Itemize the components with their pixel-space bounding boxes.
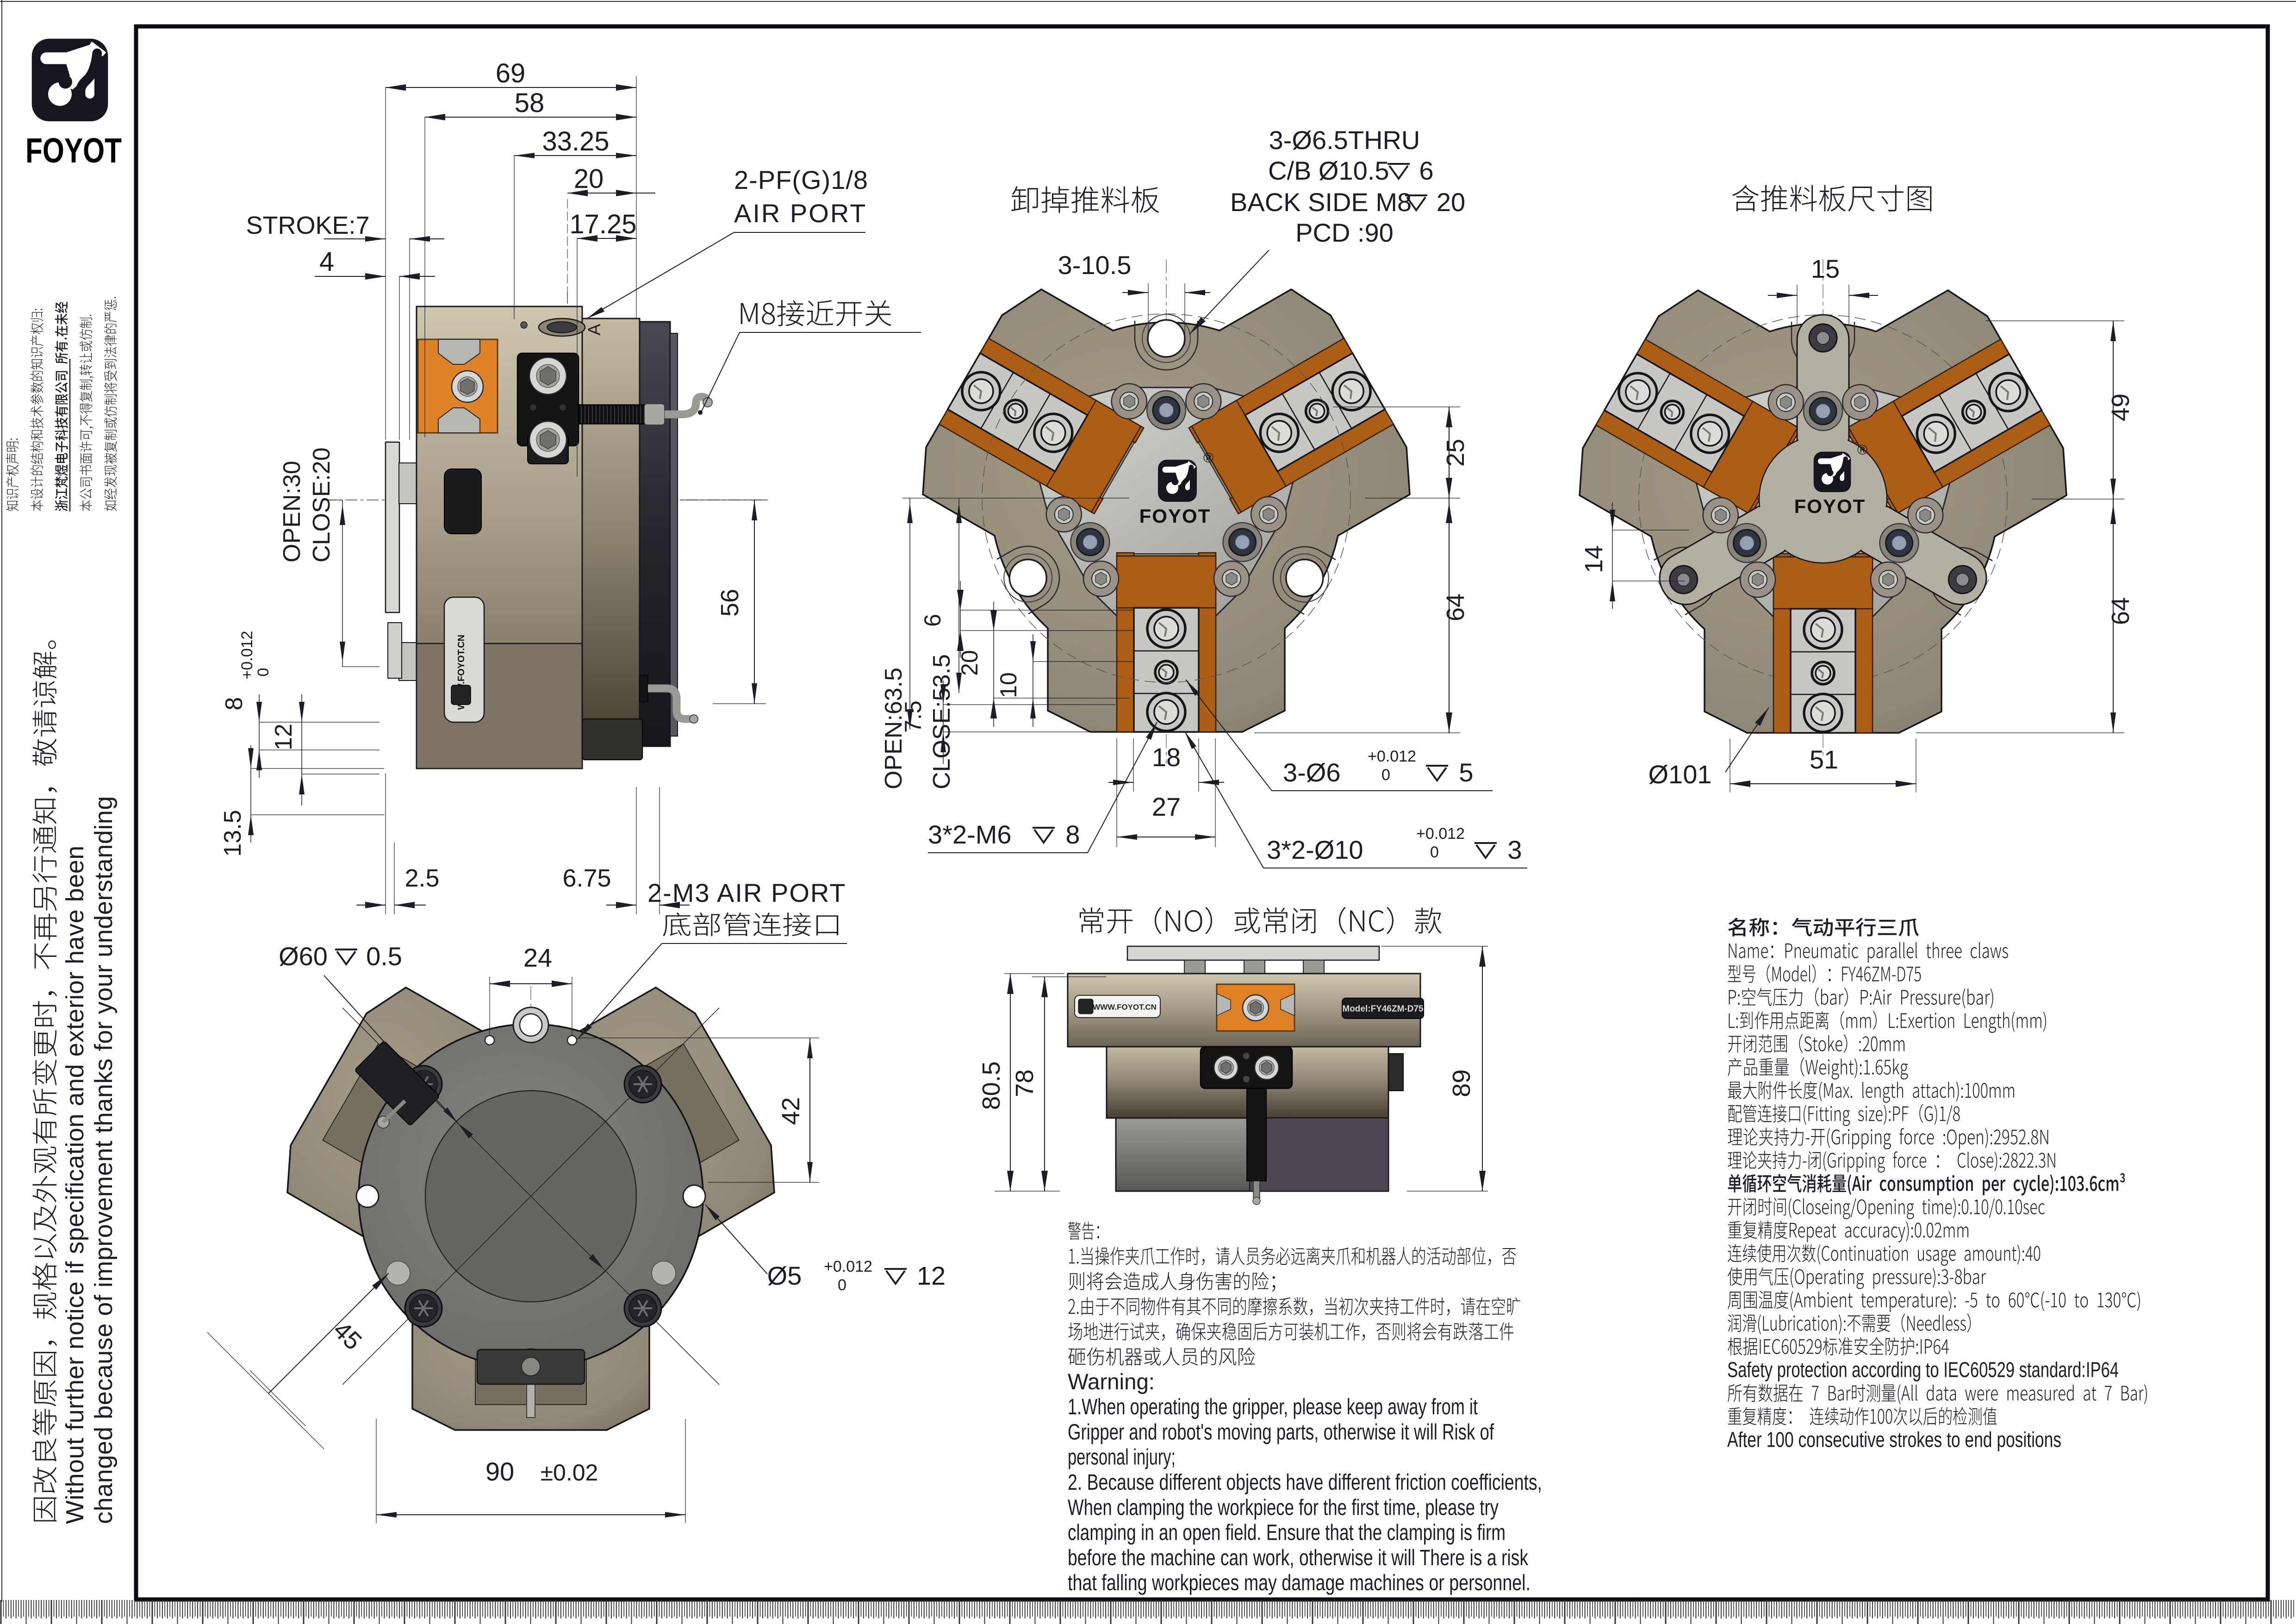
svg-text:17.25: 17.25 xyxy=(569,209,636,239)
svg-text:BACK SIDE M8: BACK SIDE M8 xyxy=(1230,187,1412,217)
svg-text:15: 15 xyxy=(1811,254,1840,283)
svg-text:changed because of improvement: changed because of improvement thanks fo… xyxy=(90,796,118,1524)
svg-text:6.75: 6.75 xyxy=(562,864,611,892)
svg-text:Safety protection according to: Safety protection according to IEC60529 … xyxy=(1727,1358,2119,1382)
svg-text:OPEN:30: OPEN:30 xyxy=(279,461,305,562)
svg-text:78: 78 xyxy=(1011,1069,1039,1097)
svg-text:89: 89 xyxy=(1448,1069,1475,1097)
svg-text:8: 8 xyxy=(1065,820,1080,849)
svg-text:69: 69 xyxy=(496,58,526,88)
svg-text:20: 20 xyxy=(957,650,983,676)
svg-text:4: 4 xyxy=(319,247,334,277)
svg-text:20: 20 xyxy=(1437,187,1465,217)
svg-text:0: 0 xyxy=(1381,766,1390,784)
svg-text:12: 12 xyxy=(270,724,297,750)
svg-text:12: 12 xyxy=(917,1261,946,1290)
svg-text:3-10.5: 3-10.5 xyxy=(1058,250,1132,280)
svg-text:PCD :90: PCD :90 xyxy=(1295,218,1394,247)
svg-text:58: 58 xyxy=(515,88,545,118)
svg-text:45: 45 xyxy=(328,1316,367,1355)
svg-text:CLOSE:20: CLOSE:20 xyxy=(308,447,335,562)
svg-text:27: 27 xyxy=(1152,792,1181,821)
svg-text:Warning:: Warning: xyxy=(1068,1370,1155,1394)
svg-text:80.5: 80.5 xyxy=(977,1061,1005,1110)
svg-text:FOYOT: FOYOT xyxy=(25,131,122,170)
svg-text:20: 20 xyxy=(574,164,604,194)
svg-text:3-Ø6.5THRU: 3-Ø6.5THRU xyxy=(1269,125,1420,155)
svg-text:42: 42 xyxy=(777,1097,805,1125)
svg-text:2-PF(G)1/8: 2-PF(G)1/8 xyxy=(734,165,868,194)
svg-text:STROKE:7: STROKE:7 xyxy=(246,212,369,239)
svg-text:0: 0 xyxy=(255,668,272,677)
svg-text:3*2-M6: 3*2-M6 xyxy=(928,820,1012,849)
svg-text:33.25: 33.25 xyxy=(542,126,609,156)
svg-text:0: 0 xyxy=(838,1276,846,1294)
svg-text:8: 8 xyxy=(221,697,248,711)
svg-text:7.5: 7.5 xyxy=(900,700,926,733)
svg-text:5: 5 xyxy=(1459,758,1473,787)
svg-text:0.5: 0.5 xyxy=(366,942,402,971)
svg-text:13.5: 13.5 xyxy=(219,810,246,856)
svg-text:14: 14 xyxy=(1580,545,1608,573)
svg-text:+0.012: +0.012 xyxy=(1416,825,1465,843)
svg-text:AIR PORT: AIR PORT xyxy=(734,199,867,228)
svg-text:CLOSE:53.5: CLOSE:53.5 xyxy=(928,654,955,789)
svg-text:®: ® xyxy=(1203,450,1213,466)
svg-text:64: 64 xyxy=(1442,593,1469,621)
svg-text:+0.012: +0.012 xyxy=(824,1258,872,1275)
svg-text:64: 64 xyxy=(2107,597,2134,625)
svg-text:10: 10 xyxy=(996,672,1021,698)
svg-text:90: 90 xyxy=(485,1457,514,1486)
svg-text:Without further notice if spec: Without further notice if specification … xyxy=(61,845,89,1524)
svg-text:51: 51 xyxy=(1810,745,1838,774)
svg-text:WWW.FOYOT.CN: WWW.FOYOT.CN xyxy=(1093,1003,1157,1012)
svg-text:6: 6 xyxy=(920,614,946,627)
svg-text:56: 56 xyxy=(716,589,744,617)
svg-text:When clamping the workpiece fo: When clamping the workpiece for the firs… xyxy=(1068,1495,1499,1520)
svg-text:clamping in an open field. Ens: clamping in an open field. Ensure that t… xyxy=(1068,1521,1506,1545)
svg-text:2.5: 2.5 xyxy=(404,864,439,892)
svg-text:Ø101: Ø101 xyxy=(1649,760,1712,789)
svg-text:25: 25 xyxy=(1442,439,1469,467)
svg-text:2-M3 AIR PORT: 2-M3 AIR PORT xyxy=(647,878,846,907)
svg-text:3*2-Ø10: 3*2-Ø10 xyxy=(1267,835,1363,864)
svg-text:A: A xyxy=(585,324,604,336)
svg-text:After 100 consecutive strokes: After 100 consecutive strokes to end pos… xyxy=(1727,1428,2061,1452)
svg-text:+0.012: +0.012 xyxy=(1368,748,1416,765)
svg-text:Model:FY46ZM-D75: Model:FY46ZM-D75 xyxy=(1342,1004,1424,1014)
svg-text:that falling workpieces may da: that falling workpieces may damage machi… xyxy=(1068,1571,1531,1595)
svg-text:24: 24 xyxy=(523,943,552,972)
svg-text:3: 3 xyxy=(1507,835,1522,864)
svg-text:before the machine can work, o: before the machine can work, otherwise i… xyxy=(1068,1546,1529,1570)
svg-text:+0.012: +0.012 xyxy=(238,631,256,680)
svg-text:Ø5: Ø5 xyxy=(767,1261,802,1290)
svg-text:1.When operating the gripper,: 1.When operating the gripper, please kee… xyxy=(1068,1395,1478,1419)
svg-text:®: ® xyxy=(1857,443,1867,458)
svg-text:C/B Ø10.5: C/B Ø10.5 xyxy=(1268,156,1389,185)
svg-text:personal injury;: personal injury; xyxy=(1068,1445,1176,1470)
svg-text:18: 18 xyxy=(1152,743,1181,772)
svg-text:6: 6 xyxy=(1419,156,1433,185)
svg-text:±0.02: ±0.02 xyxy=(541,1460,598,1486)
svg-text:0: 0 xyxy=(1430,843,1439,861)
svg-text:3-Ø6: 3-Ø6 xyxy=(1283,758,1341,787)
svg-text:FOYOT: FOYOT xyxy=(1794,495,1866,517)
svg-text:Ø60: Ø60 xyxy=(279,942,328,971)
svg-text:Gripper and robot's moving par: Gripper and robot's moving parts, otherw… xyxy=(1068,1420,1494,1444)
svg-text:2. Because different objects h: 2. Because different objects have differ… xyxy=(1068,1470,1542,1495)
svg-text:FOYOT: FOYOT xyxy=(1139,505,1211,527)
svg-text:49: 49 xyxy=(2107,394,2134,421)
